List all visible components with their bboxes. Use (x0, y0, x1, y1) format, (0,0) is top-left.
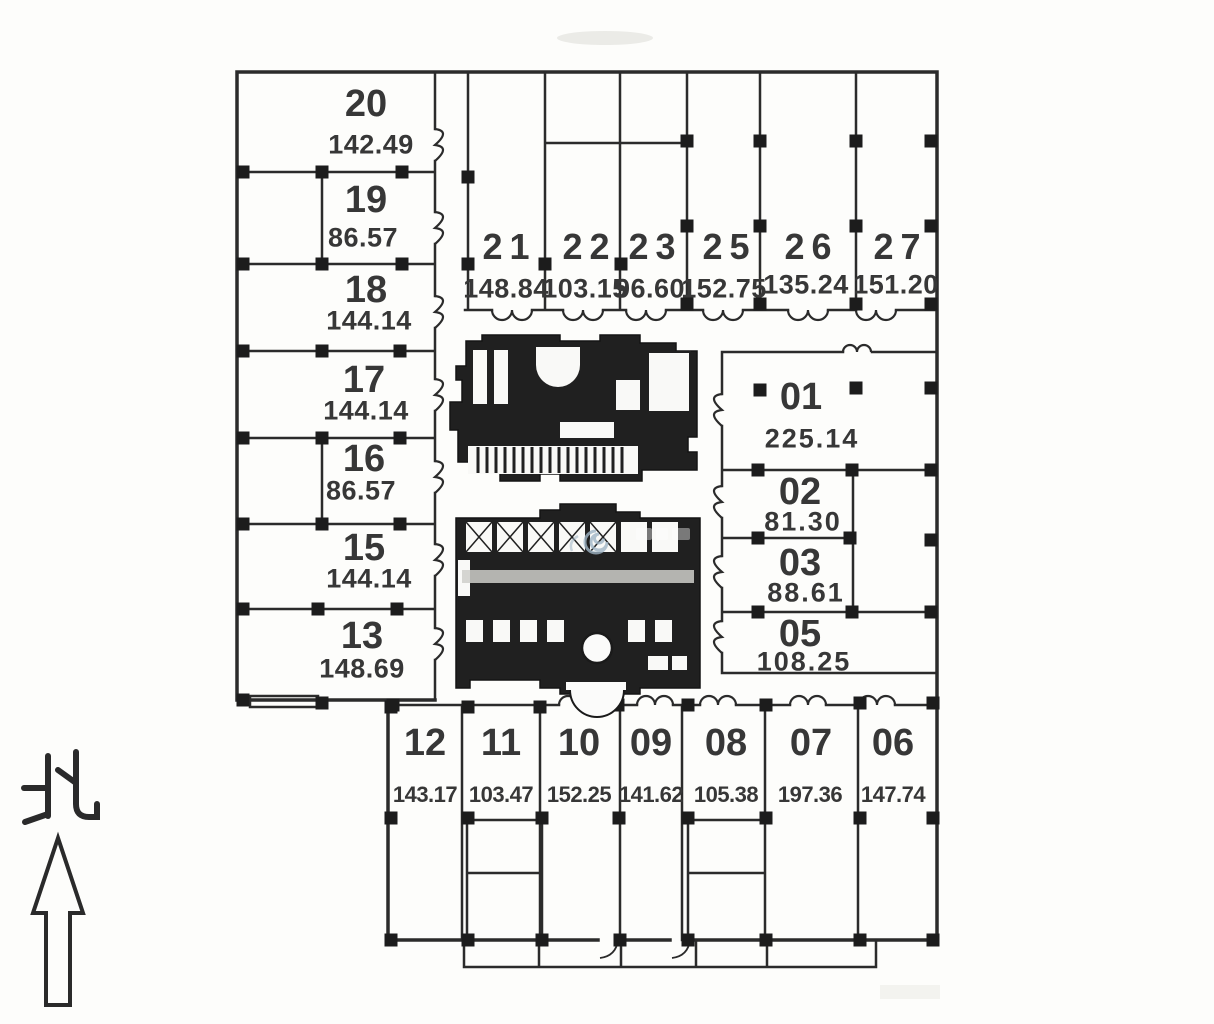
unit-20-area: 142.49 (328, 132, 414, 159)
unit-16-number: 16 (343, 440, 385, 478)
unit-07-area: 197.36 (778, 784, 842, 806)
north-arrow-icon (24, 752, 97, 1005)
unit-13-number: 13 (341, 617, 383, 655)
unit-21-number: 21 (475, 229, 536, 265)
unit-09-area: 141.62 (619, 784, 683, 806)
unit-26-area: 135.24 (763, 272, 849, 299)
north-label-glyph (24, 752, 97, 822)
unit-10-number: 10 (558, 724, 600, 762)
unit-21-area: 148.84 (463, 276, 549, 303)
unit-01-number: 01 (780, 378, 822, 416)
unit-06-number: 06 (872, 724, 914, 762)
core-upper (450, 335, 697, 481)
unit-05-area: 108.25 (757, 649, 852, 676)
unit-07-number: 07 (790, 724, 832, 762)
unit-19-area: 86.57 (328, 225, 398, 252)
unit-20-number: 20 (345, 85, 387, 123)
unit-22-number: 22 (555, 229, 616, 265)
unit-12-number: 12 (404, 724, 446, 762)
unit-23-area: 96.60 (615, 276, 685, 303)
unit-17-area: 144.14 (323, 398, 409, 425)
unit-18-number: 18 (345, 271, 387, 309)
unit-19-number: 19 (345, 181, 387, 219)
unit-09-number: 09 (630, 724, 672, 762)
unit-10-area: 152.25 (547, 784, 611, 806)
unit-13-area: 148.69 (319, 656, 405, 683)
floorplan-linework (0, 0, 1214, 1024)
unit-08-number: 08 (705, 724, 747, 762)
unit-03-number: 03 (779, 544, 821, 582)
unit-25-area: 152.75 (681, 276, 767, 303)
unit-08-area: 105.38 (694, 784, 758, 806)
floor-plan: 20 142.49 19 86.57 18 144.14 17 144.14 1… (0, 0, 1214, 1024)
unit-11-number: 11 (481, 724, 521, 762)
unit-15-area: 144.14 (326, 566, 412, 593)
unit-15-number: 15 (343, 529, 385, 567)
unit-02-number: 02 (779, 473, 821, 511)
unit-06-area: 147.74 (861, 784, 925, 806)
north-arrow-shape (33, 838, 83, 1005)
unit-23-number: 23 (621, 229, 682, 265)
unit-01-area: 225.14 (765, 426, 860, 453)
unit-27-area: 151.20 (853, 272, 939, 299)
unit-16-area: 86.57 (326, 478, 396, 505)
unit-26-number: 26 (777, 229, 838, 265)
unit-27-number: 27 (866, 229, 927, 265)
unit-02-area: 81.30 (764, 509, 842, 536)
unit-03-area: 88.61 (767, 580, 845, 607)
unit-18-area: 144.14 (326, 308, 412, 335)
unit-25-number: 25 (695, 229, 756, 265)
unit-12-area: 143.17 (393, 784, 457, 806)
unit-11-area: 103.47 (469, 784, 533, 806)
unit-17-number: 17 (343, 361, 385, 399)
